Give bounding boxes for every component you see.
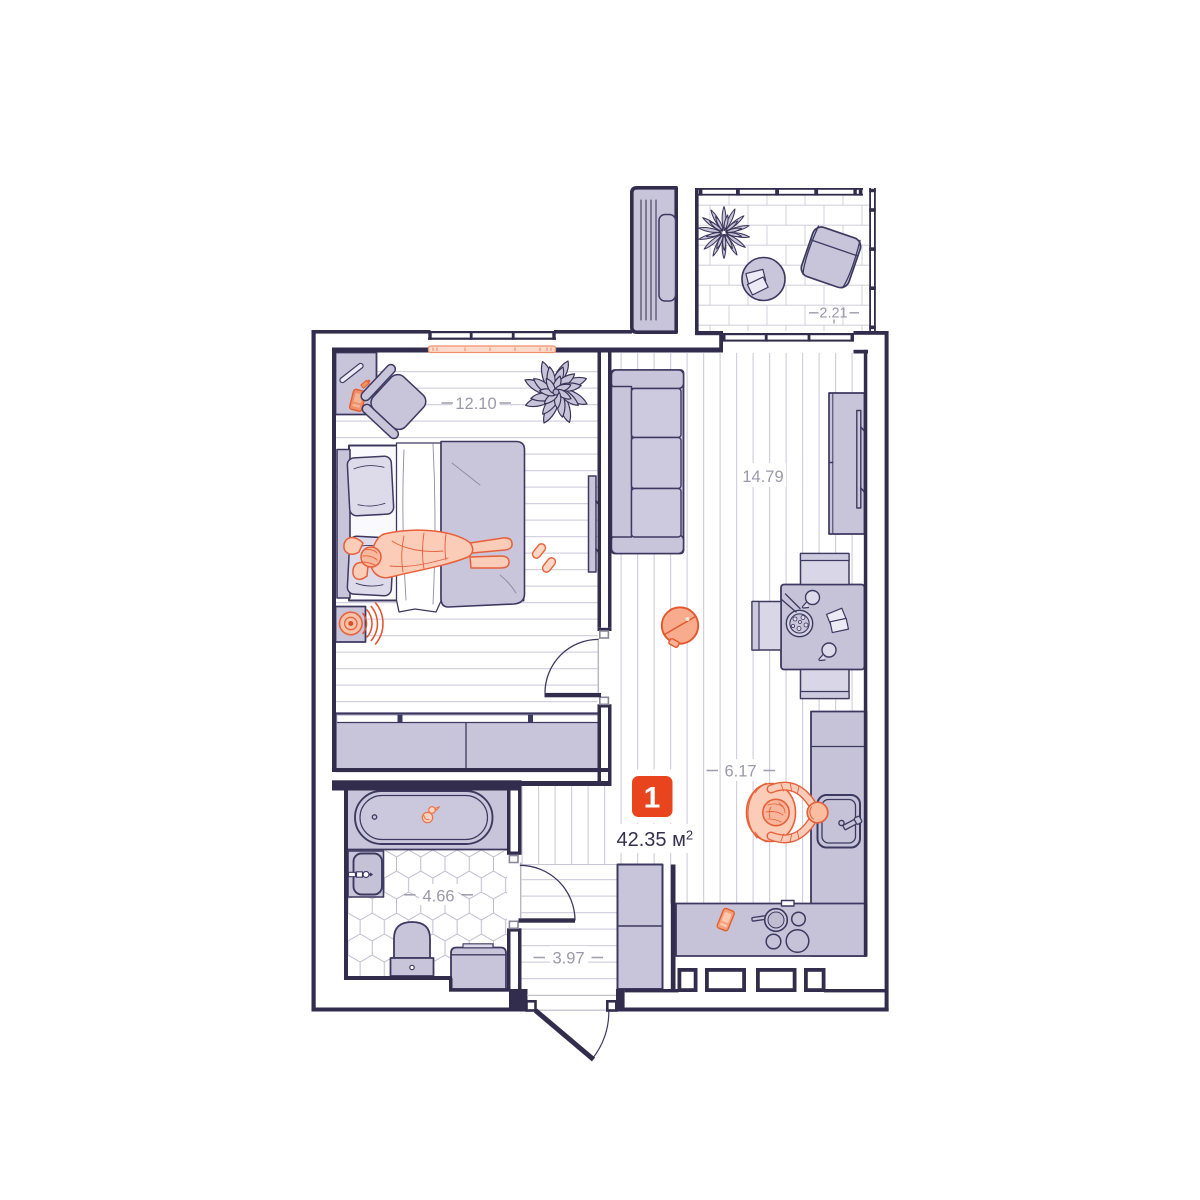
svg-text:42.35 м2: 42.35 м2 <box>617 828 694 852</box>
svg-text:12.10: 12.10 <box>455 395 496 413</box>
svg-text:6.17: 6.17 <box>724 763 756 781</box>
svg-text:1: 1 <box>644 782 661 815</box>
svg-text:3.97: 3.97 <box>552 950 584 968</box>
svg-text:4.66: 4.66 <box>422 888 454 906</box>
svg-text:14.79: 14.79 <box>742 468 783 486</box>
svg-text:2.21: 2.21 <box>819 306 847 322</box>
